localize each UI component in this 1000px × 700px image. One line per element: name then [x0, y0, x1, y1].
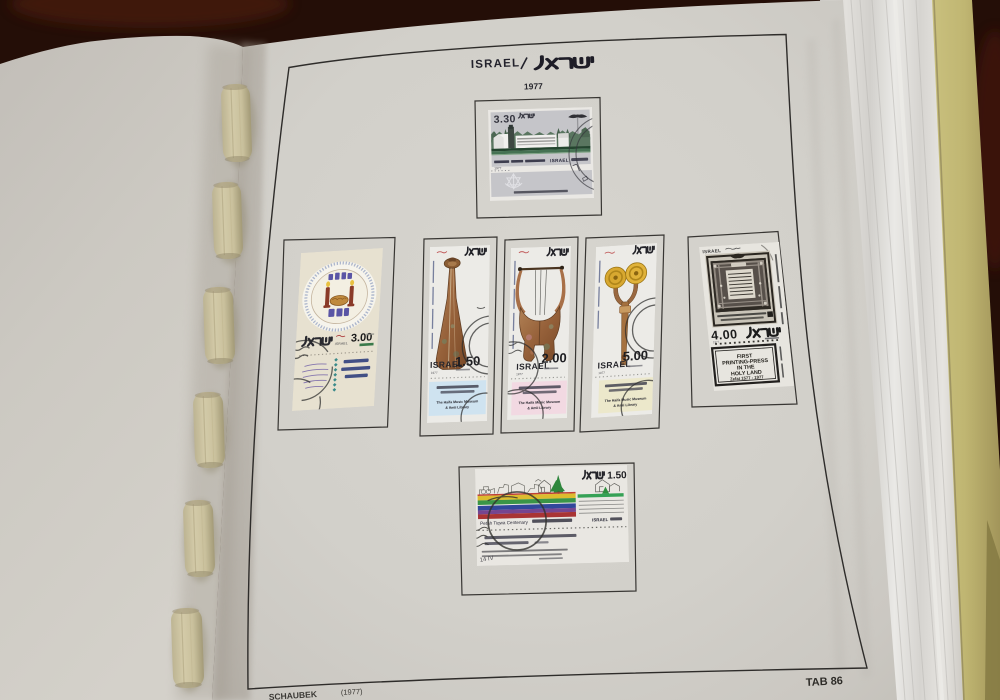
svg-text:ISRAEL: ISRAEL — [335, 341, 348, 346]
svg-text:1977: 1977 — [524, 81, 543, 91]
svg-text:1977: 1977 — [494, 166, 501, 170]
svg-text:1977: 1977 — [598, 371, 605, 375]
svg-text:3.30: 3.30 — [494, 113, 516, 126]
svg-text:1977: 1977 — [431, 371, 438, 375]
svg-text:3.00: 3.00 — [351, 331, 373, 344]
svg-text:TAB 86: TAB 86 — [806, 675, 844, 689]
svg-text:ISRAEL: ISRAEL — [471, 57, 521, 71]
svg-text:1977: 1977 — [516, 372, 523, 376]
svg-text:& Amli Library: & Amli Library — [527, 406, 551, 411]
svg-text:(1977): (1977) — [341, 687, 364, 697]
svg-text:ISRAEL: ISRAEL — [550, 158, 569, 164]
svg-text:SCHAUBEK: SCHAUBEK — [269, 689, 319, 700]
svg-text:ISRAEL: ISRAEL — [592, 517, 609, 522]
svg-text:1.50: 1.50 — [607, 470, 627, 482]
svg-text:& Amli Library: & Amli Library — [445, 405, 469, 410]
svg-text:ISRAEL: ISRAEL — [516, 361, 550, 372]
